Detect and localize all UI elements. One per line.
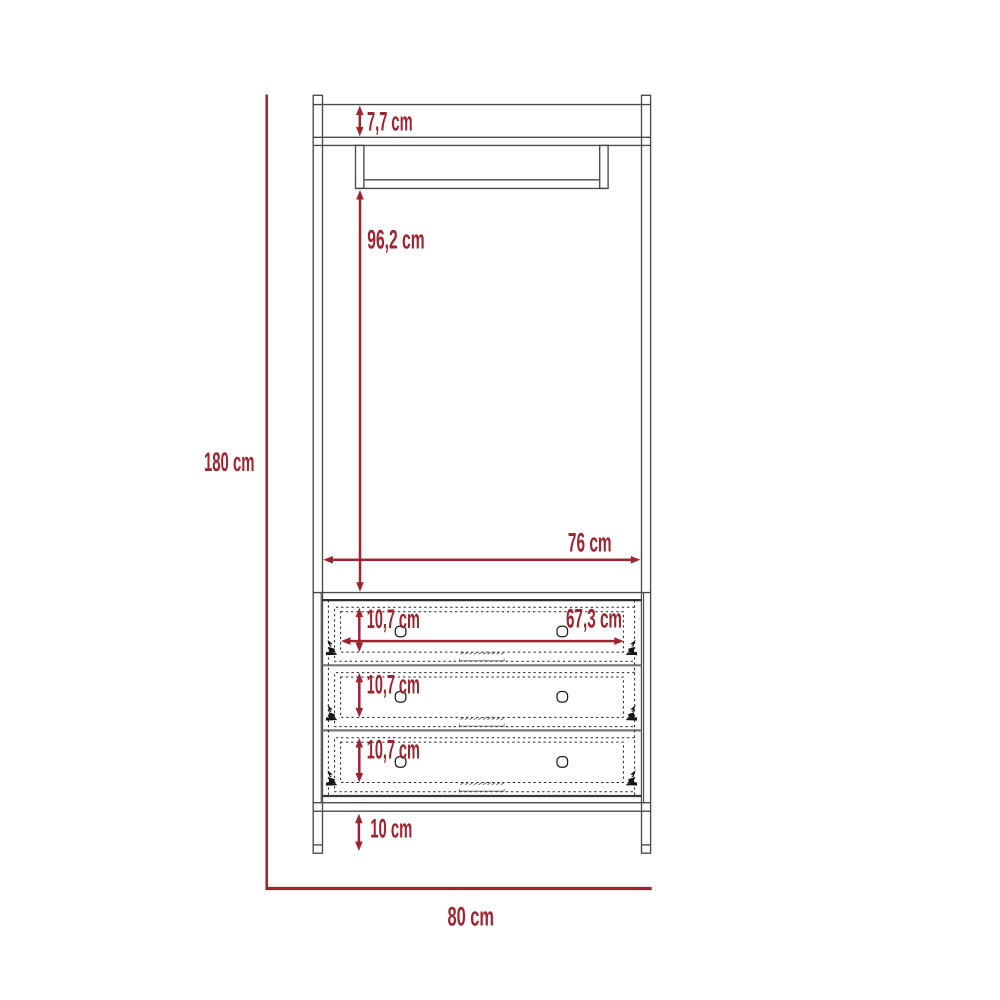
svg-text:7,7 cm: 7,7 cm (367, 106, 413, 136)
svg-text:67,3 cm: 67,3 cm (566, 604, 622, 634)
svg-text:76 cm: 76 cm (568, 528, 612, 558)
svg-text:180 cm: 180 cm (204, 447, 255, 477)
svg-text:10 cm: 10 cm (370, 814, 412, 844)
svg-text:96,2 cm: 96,2 cm (367, 225, 424, 255)
svg-text:10,7 cm: 10,7 cm (367, 735, 420, 765)
svg-text:80 cm: 80 cm (448, 901, 495, 931)
svg-text:10,7 cm: 10,7 cm (367, 669, 420, 699)
svg-text:10,7 cm: 10,7 cm (367, 604, 420, 634)
